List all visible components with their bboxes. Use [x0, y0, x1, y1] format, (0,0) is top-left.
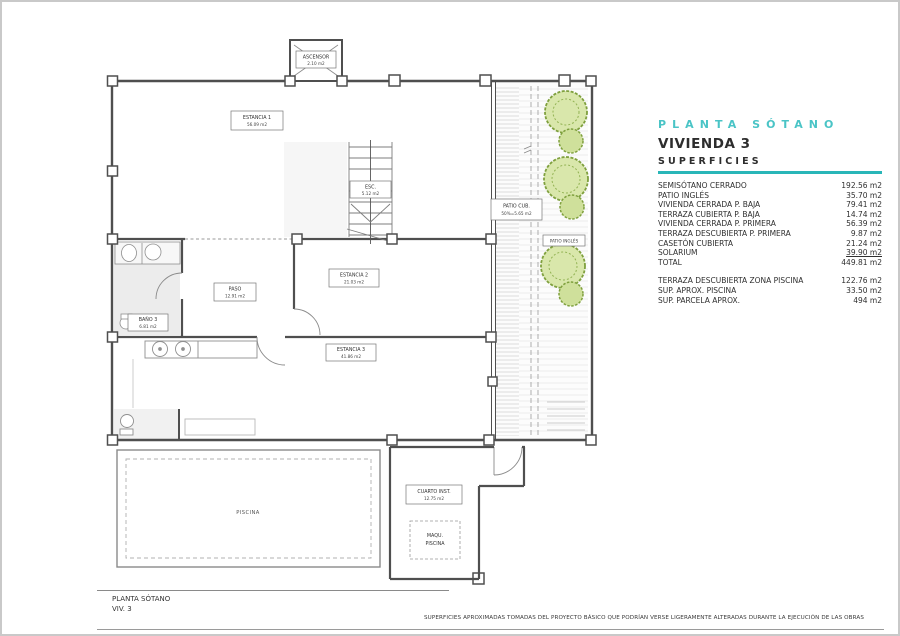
dwelling-title: VIVIENDA 3	[658, 136, 882, 152]
row-label: SOLARIUM	[658, 248, 698, 258]
row-value: 35.70 m2	[846, 191, 882, 201]
row-value: 192.56 m2	[841, 181, 882, 191]
surfaces-table: SEMISÓTANO CERRADO192.56 m2 PATIO INGLÉS…	[658, 181, 882, 267]
room-label-paso: PASO 12.91 m2	[214, 283, 256, 301]
table-row: SOLARIUM39.90 m2	[658, 248, 882, 258]
elevator: ASCENSOR 2.10 m2	[290, 40, 342, 81]
table-row: TERRAZA CUBIERTA P. BAJA14.74 m2	[658, 210, 882, 220]
row-label: SEMISÓTANO CERRADO	[658, 181, 747, 191]
svg-text:PATIO INGLÉS: PATIO INGLÉS	[550, 239, 579, 244]
svg-text:56.09 m2: 56.09 m2	[247, 122, 267, 127]
row-label: TOTAL	[658, 258, 682, 268]
door-arcs	[156, 273, 522, 475]
row-value-underlined: 39.90 m2	[846, 248, 882, 258]
row-label: SUP. PARCELA APROX.	[658, 296, 740, 306]
table-row: CASETÓN CUBIERTA21.24 m2	[658, 239, 882, 249]
svg-text:PISCINA: PISCINA	[426, 541, 446, 547]
svg-text:6.81 m2: 6.81 m2	[139, 324, 157, 329]
titleblock-plan-name: PLANTA SÓTANO	[112, 595, 170, 605]
elevator-label: ASCENSOR	[303, 55, 330, 61]
svg-text:PASO: PASO	[229, 287, 242, 293]
row-label: SUP. APROX. PISCINA	[658, 286, 736, 296]
row-label: VIVIENDA CERRADA P. BAJA	[658, 200, 760, 210]
svg-text:CUARTO INST.: CUARTO INST.	[417, 489, 450, 495]
stairs-label: ESC. 5.12 m2	[350, 181, 391, 198]
teal-rule	[658, 171, 882, 174]
surfaces-heading: SUPERFICIES	[658, 156, 882, 167]
row-label: PATIO INGLÉS	[658, 191, 709, 201]
legend-panel: PLANTA SÓTANO VIVIENDA 3 SUPERFICIES SEM…	[658, 118, 882, 305]
table-row: SUP. APROX. PISCINA33.50 m2	[658, 286, 882, 296]
row-label: TERRAZA CUBIERTA P. BAJA	[658, 210, 760, 220]
table-row: SEMISÓTANO CERRADO192.56 m2	[658, 181, 882, 191]
table-row: TERRAZA DESCUBIERTA ZONA PISCINA122.76 m…	[658, 276, 882, 286]
room-label-bano-3: BAÑO 3 6.81 m2	[128, 314, 168, 331]
row-label: TERRAZA DESCUBIERTA P. PRIMERA	[658, 229, 791, 239]
room-label-patio-cub: PATIO CUB. 50%=5.65 m2	[491, 199, 542, 220]
titleblock-dwelling: VIV. 3	[112, 605, 170, 615]
room-label-estancia-2: ESTANCIA 2 21.03 m2	[329, 269, 379, 287]
room-label-maqu-piscina: MAQU. PISCINA	[410, 521, 460, 559]
table-row: VIVIENDA CERRADA P. PRIMERA56.39 m2	[658, 219, 882, 229]
row-value: 79.41 m2	[846, 200, 882, 210]
svg-text:BAÑO 3: BAÑO 3	[139, 316, 158, 323]
svg-text:21.03 m2: 21.03 m2	[344, 280, 364, 285]
row-value: 9.87 m2	[851, 229, 882, 239]
row-value: 21.24 m2	[846, 239, 882, 249]
room-label-estancia-3: ESTANCIA 3 41.86 m2	[326, 344, 376, 361]
row-label: CASETÓN CUBIERTA	[658, 239, 733, 249]
svg-text:50%=5.65 m2: 50%=5.65 m2	[501, 211, 532, 216]
row-value: 122.76 m2	[841, 276, 882, 286]
row-label: VIVIENDA CERRADA P. PRIMERA	[658, 219, 776, 229]
table-row-total: TOTAL449.81 m2	[658, 258, 882, 268]
table-row: PATIO INGLÉS35.70 m2	[658, 191, 882, 201]
footer-rule	[97, 629, 884, 630]
table-row: SUP. PARCELA APROX.494 m2	[658, 296, 882, 306]
surfaces-table-extra: TERRAZA DESCUBIERTA ZONA PISCINA122.76 m…	[658, 276, 882, 305]
drawing-sheet: ASCENSOR 2.10 m2 E	[0, 0, 900, 636]
svg-text:MAQU.: MAQU.	[427, 533, 443, 539]
svg-text:PATIO CUB.: PATIO CUB.	[503, 204, 530, 210]
row-value: 449.81 m2	[841, 258, 882, 268]
row-value: 33.50 m2	[846, 286, 882, 296]
row-value: 494 m2	[853, 296, 882, 306]
disclaimer-text: SUPERFICIES APROXIMADAS TOMADAS DEL PROY…	[424, 615, 864, 621]
room-label-patio-ingles: PATIO INGLÉS	[543, 235, 585, 246]
svg-text:ESTANCIA 3: ESTANCIA 3	[337, 347, 365, 353]
row-label: TERRAZA DESCUBIERTA ZONA PISCINA	[658, 276, 803, 286]
svg-text:5.12 m2: 5.12 m2	[362, 191, 380, 196]
svg-text:12.75 m2: 12.75 m2	[424, 496, 444, 501]
row-value: 14.74 m2	[846, 210, 882, 220]
room-label-estancia-1: ESTANCIA 1 56.09 m2	[231, 111, 283, 130]
svg-text:ESC.: ESC.	[365, 185, 376, 191]
pool: PISCINA	[117, 450, 380, 567]
svg-text:ESTANCIA 1: ESTANCIA 1	[243, 115, 271, 121]
svg-text:12.91 m2: 12.91 m2	[225, 294, 245, 299]
stair-landing	[284, 142, 347, 237]
room-label-cuarto-inst: CUARTO INST. 12.75 m2	[406, 485, 462, 504]
floor-plan-drawing: ASCENSOR 2.10 m2 E	[2, 2, 900, 636]
plan-title-teal: PLANTA SÓTANO	[658, 118, 882, 131]
titleblock: PLANTA SÓTANO VIV. 3	[112, 595, 170, 614]
row-value: 56.39 m2	[846, 219, 882, 229]
pool-label: PISCINA	[236, 510, 259, 516]
svg-text:ESTANCIA 2: ESTANCIA 2	[340, 273, 368, 279]
svg-text:41.86 m2: 41.86 m2	[341, 354, 361, 359]
table-row: VIVIENDA CERRADA P. BAJA79.41 m2	[658, 200, 882, 210]
table-row: TERRAZA DESCUBIERTA P. PRIMERA9.87 m2	[658, 229, 882, 239]
titleblock-rule	[97, 590, 449, 591]
elevator-area: 2.10 m2	[307, 61, 325, 66]
